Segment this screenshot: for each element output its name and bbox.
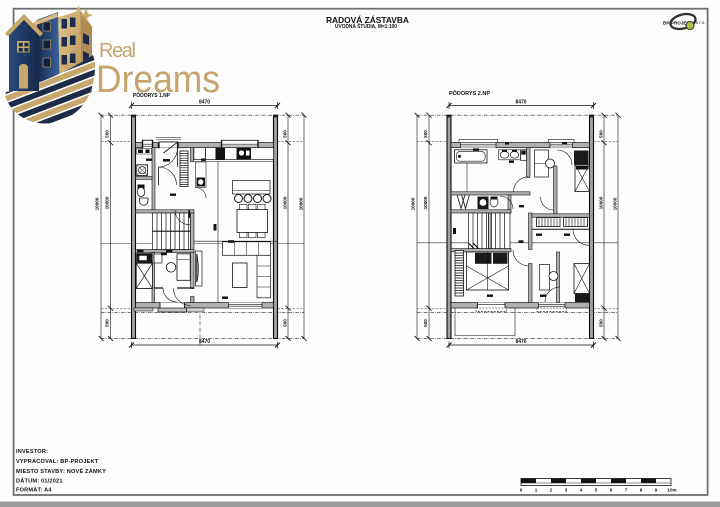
svg-text:8: 8 — [640, 488, 643, 493]
svg-text:8470: 8470 — [199, 339, 210, 345]
svg-text:1: 1 — [535, 488, 538, 493]
svg-text:4: 4 — [580, 488, 583, 493]
svg-text:10000: 10000 — [423, 196, 428, 209]
svg-text:500: 500 — [423, 319, 428, 327]
svg-text:10000: 10000 — [411, 197, 416, 210]
svg-text:10000: 10000 — [613, 197, 618, 210]
svg-text:2: 2 — [550, 488, 553, 493]
svg-text:8470: 8470 — [515, 339, 526, 345]
svg-text:INVESTOR:: INVESTOR: — [16, 449, 48, 455]
svg-text:500: 500 — [599, 130, 604, 138]
svg-text:ÚVODNÁ ŠTÚDIA, M=1:100: ÚVODNÁ ŠTÚDIA, M=1:100 — [335, 22, 397, 30]
svg-text:500: 500 — [283, 130, 288, 138]
svg-text:500: 500 — [283, 319, 288, 327]
svg-text:PÔDORYS 2.NP: PÔDORYS 2.NP — [449, 89, 491, 97]
svg-text:DÁTUM: 01/2021: DÁTUM: 01/2021 — [16, 478, 63, 485]
svg-text:10000: 10000 — [599, 196, 604, 209]
svg-text:MIESTO STAVBY: NOVÉ ZÁMKY: MIESTO STAVBY: NOVÉ ZÁMKY — [16, 467, 106, 475]
svg-text:10m: 10m — [667, 488, 676, 493]
svg-text:500: 500 — [423, 130, 428, 138]
svg-text:FORMÁT: A4: FORMÁT: A4 — [16, 487, 52, 494]
svg-text:10000: 10000 — [105, 196, 110, 209]
svg-text:6: 6 — [610, 488, 613, 493]
svg-text:s r.o.: s r.o. — [696, 20, 705, 25]
svg-text:500: 500 — [105, 130, 110, 138]
svg-text:0: 0 — [520, 488, 523, 493]
svg-text:7: 7 — [625, 488, 628, 493]
svg-text:10000: 10000 — [283, 196, 288, 209]
svg-text:3: 3 — [565, 488, 568, 493]
svg-text:VYPRACOVAL: BP-PROJEKT: VYPRACOVAL: BP-PROJEKT — [16, 459, 99, 465]
svg-text:10000: 10000 — [95, 197, 100, 210]
svg-text:PÔDORYS 1.NP: PÔDORYS 1.NP — [133, 91, 171, 99]
svg-text:500: 500 — [105, 319, 110, 327]
svg-text:8470: 8470 — [515, 100, 526, 106]
svg-text:5: 5 — [595, 488, 598, 493]
svg-text:500: 500 — [599, 319, 604, 327]
svg-text:8470: 8470 — [199, 100, 210, 106]
svg-text:9: 9 — [655, 488, 658, 493]
svg-text:10000: 10000 — [299, 197, 304, 210]
